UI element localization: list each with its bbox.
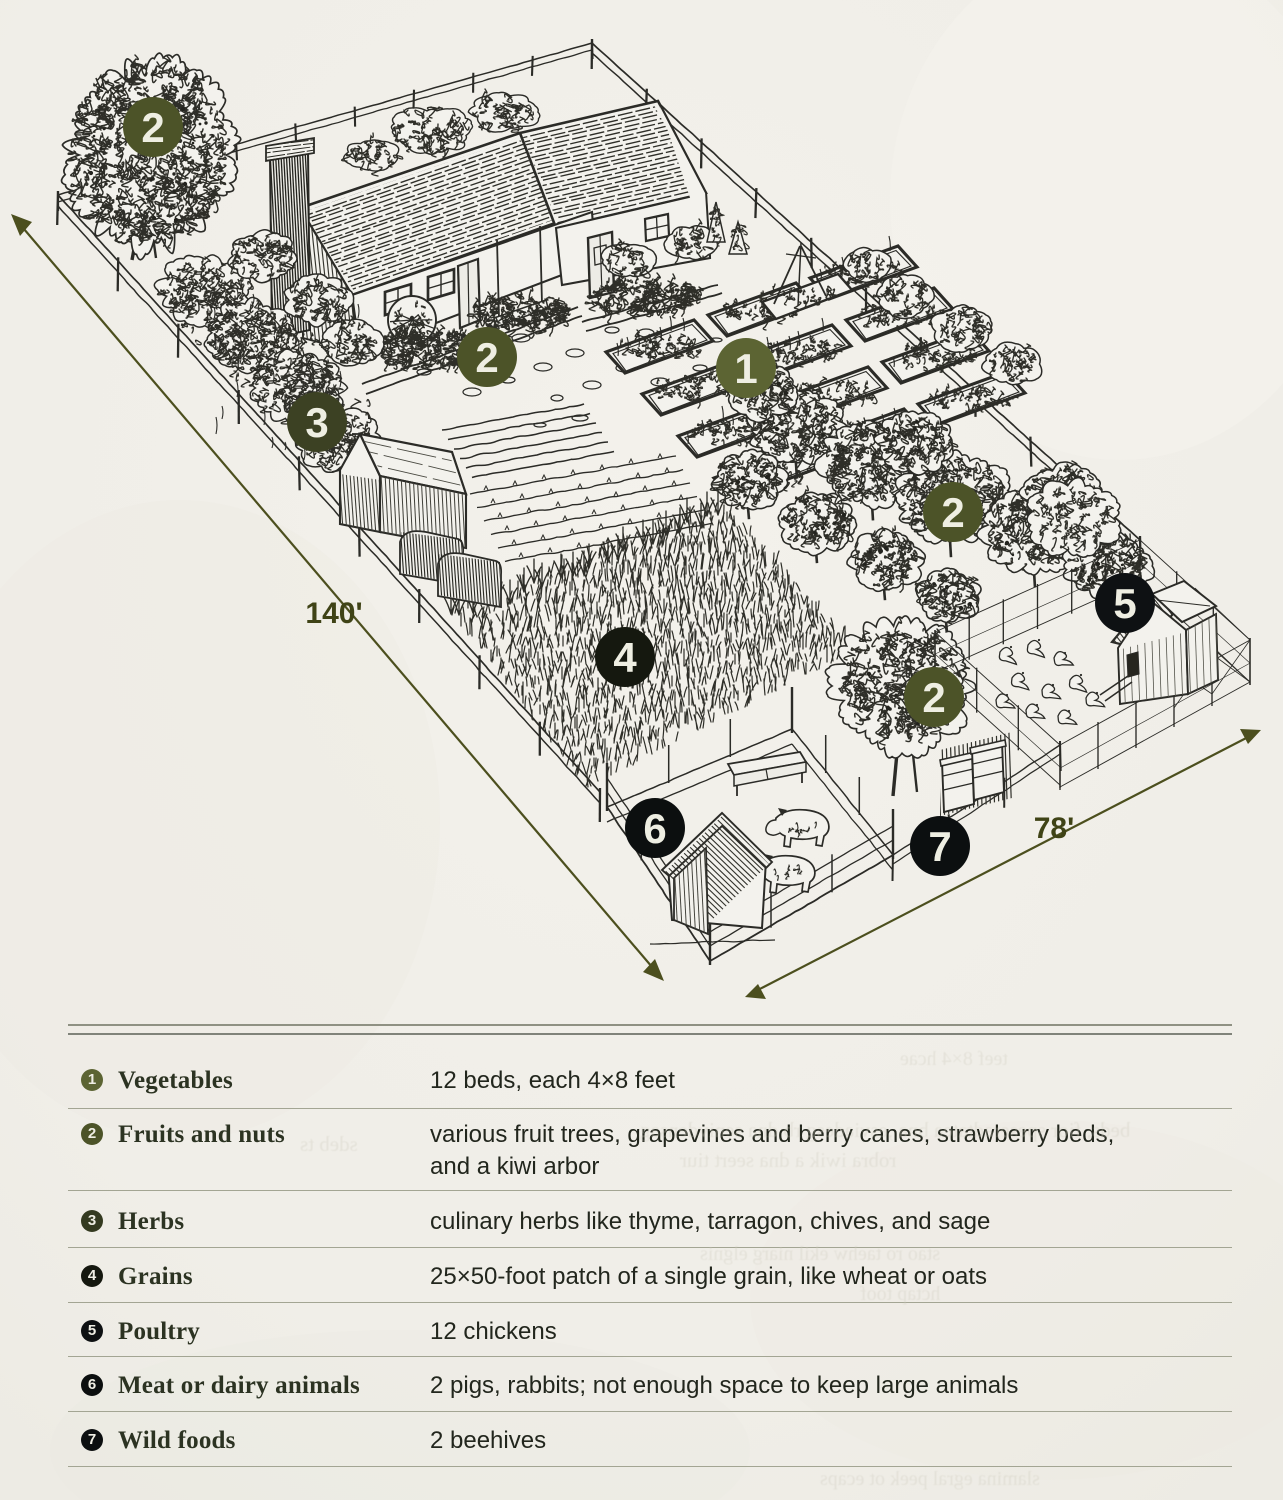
svg-text:78': 78' [1034, 812, 1075, 845]
svg-text:2: 2 [141, 104, 164, 151]
svg-text:2: 2 [941, 489, 964, 536]
svg-text:5: 5 [1113, 580, 1136, 627]
svg-text:3: 3 [305, 399, 328, 446]
svg-text:7: 7 [928, 823, 951, 870]
svg-text:6: 6 [643, 805, 666, 852]
svg-text:140': 140' [305, 597, 362, 630]
svg-text:4: 4 [613, 634, 637, 681]
svg-text:2: 2 [475, 334, 498, 381]
svg-text:1: 1 [734, 345, 757, 392]
svg-text:2: 2 [922, 674, 945, 721]
